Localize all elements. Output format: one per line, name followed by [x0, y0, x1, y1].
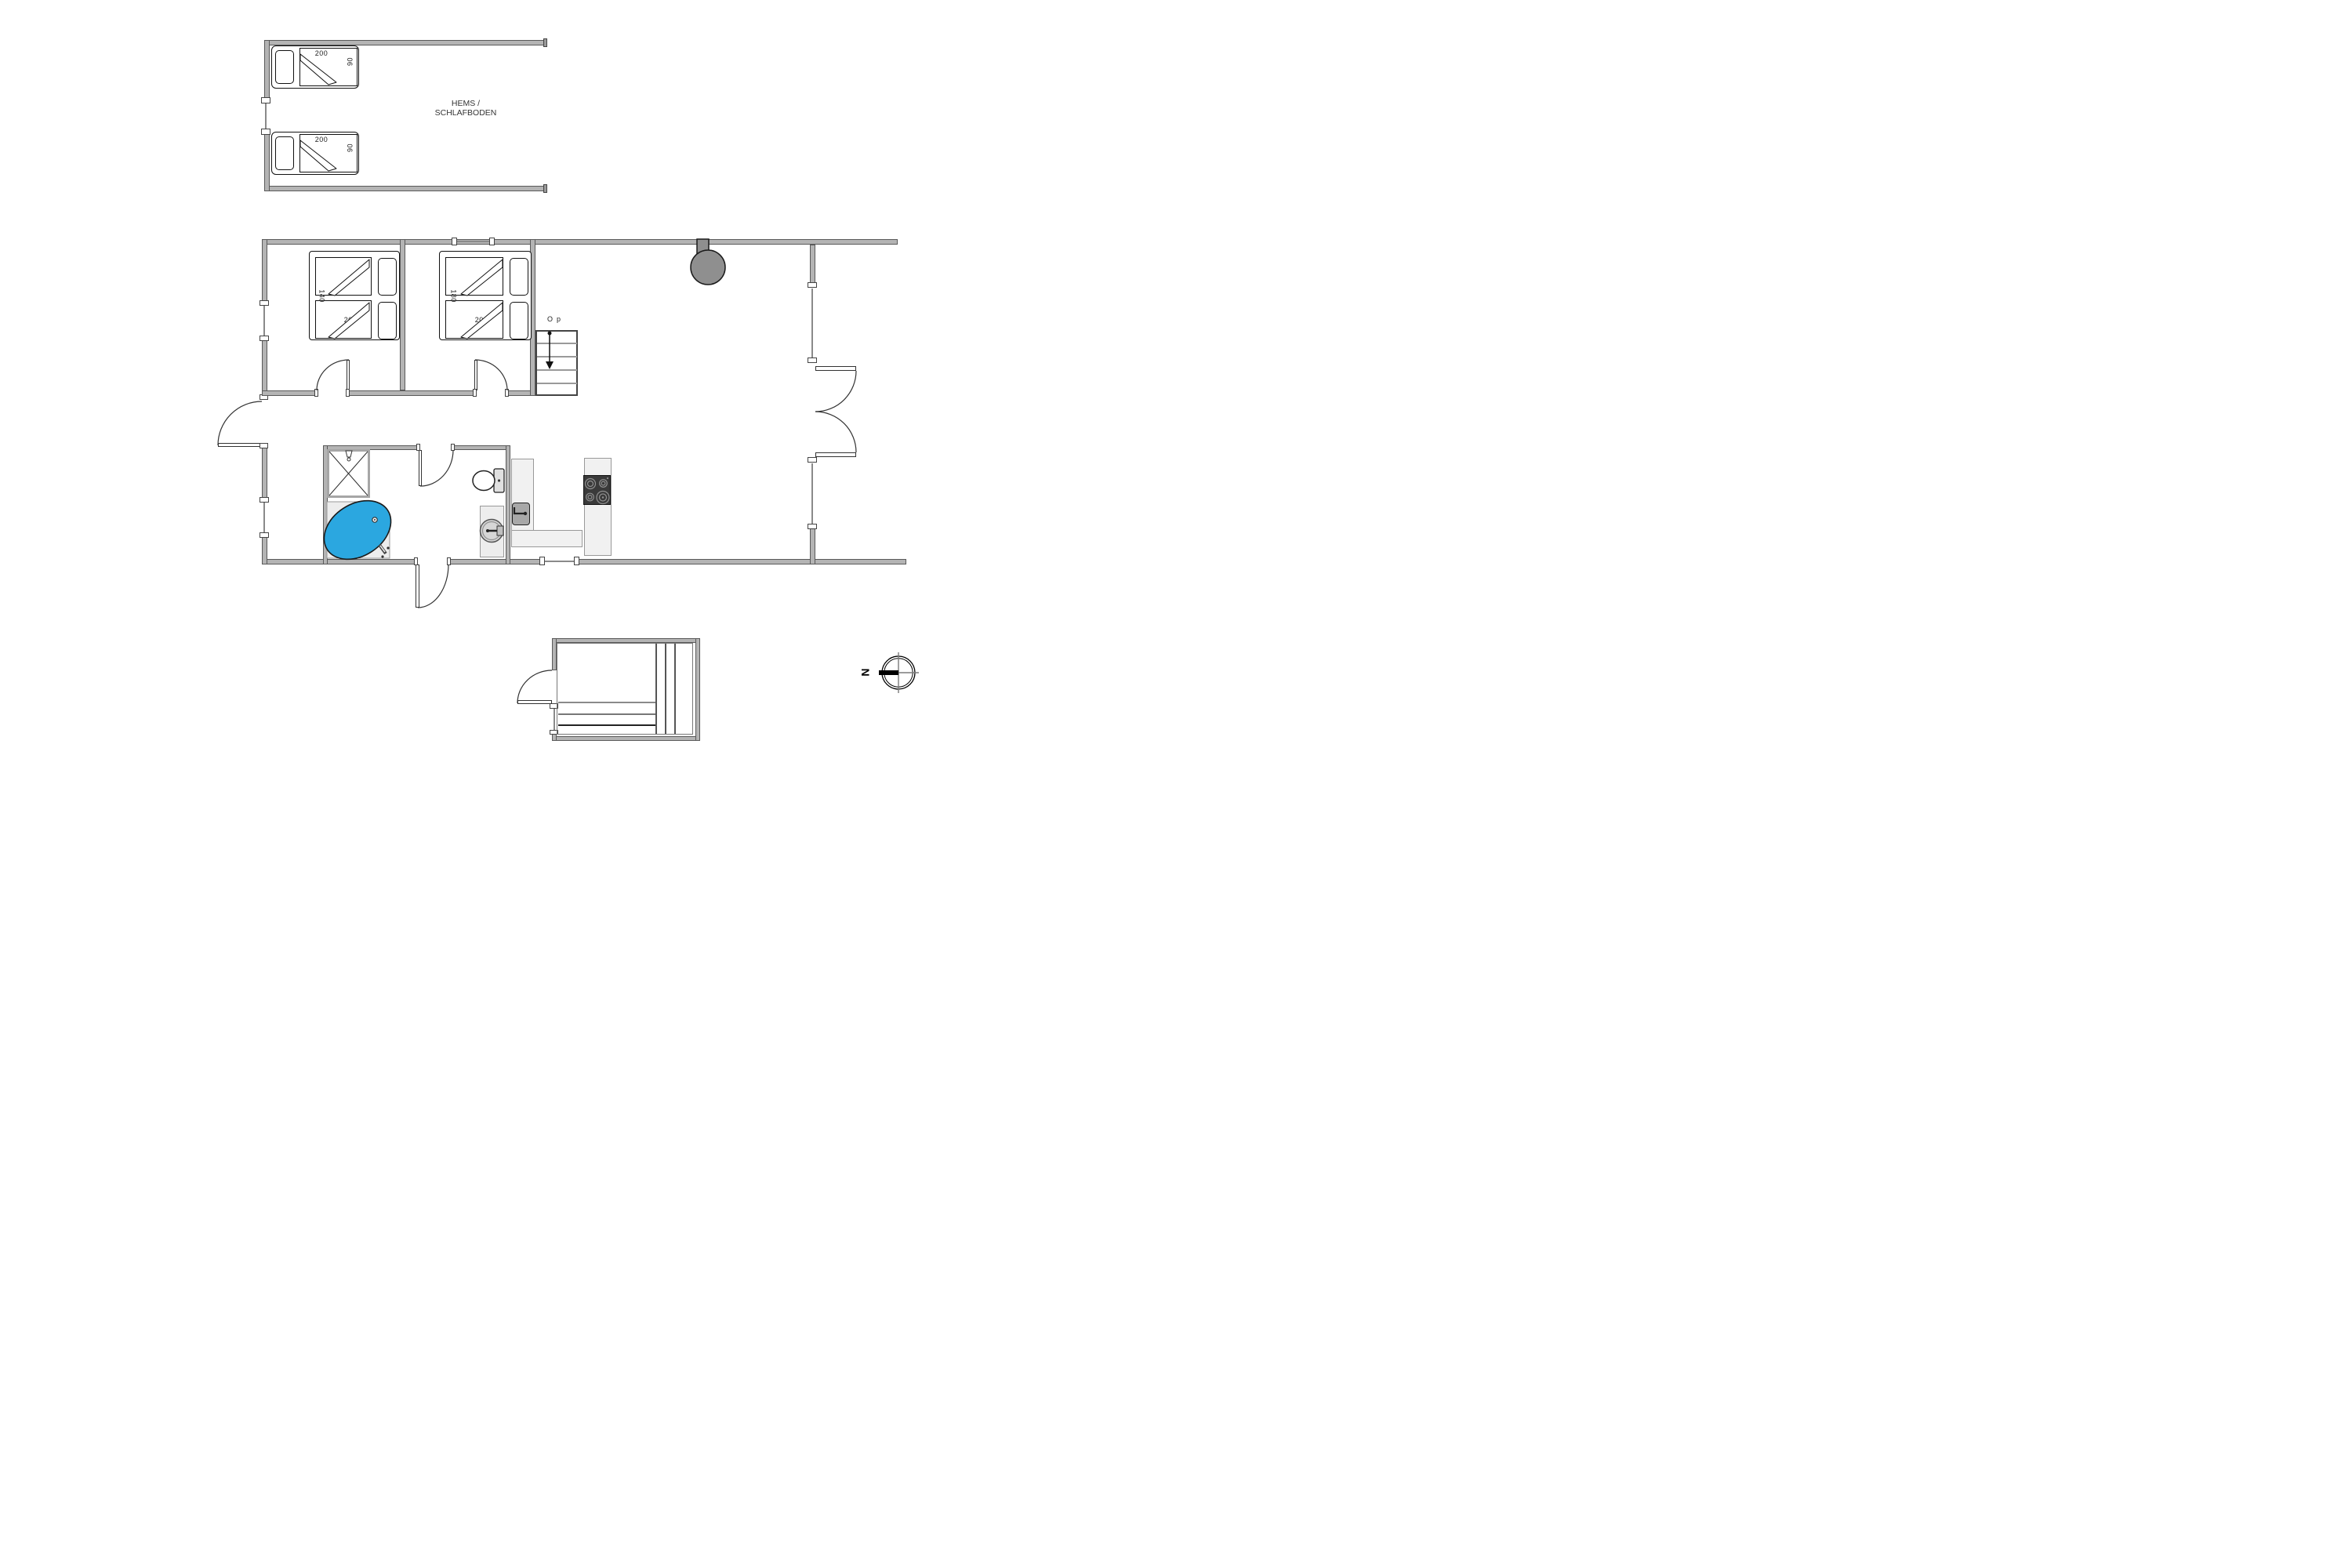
- top-window: [456, 241, 490, 242]
- left-window-upper-frame-b: [260, 336, 269, 341]
- outbuilding-bench-line-1: [558, 702, 655, 703]
- loft-wall-bottom: [264, 186, 546, 191]
- outbuilding-partition-slat-3: [674, 644, 676, 734]
- outbuilding-door-leaf: [517, 700, 552, 704]
- outbuilding-wall-right: [695, 638, 700, 741]
- main-wall-top: [262, 239, 898, 245]
- bedroom1-pillow-a: [378, 258, 397, 296]
- bedroom2-pillow-a: [510, 258, 528, 296]
- right-window-frame-3: [808, 457, 817, 463]
- loft-room-label: HEMS / SCHLAFBODEN: [403, 100, 528, 118]
- outbuilding-door-arc: [517, 670, 552, 703]
- loft-wall-top: [264, 40, 546, 45]
- outbuilding-partition-slat-2: [665, 644, 666, 734]
- compass: [879, 652, 919, 693]
- toilet-tank: [494, 469, 504, 492]
- outbuilding-window: [554, 709, 555, 731]
- bedroom1-door-arc: [317, 360, 349, 390]
- bedroom1-door-leaf: [347, 360, 350, 390]
- right-window-upper: [811, 289, 813, 358]
- bedroom1-width-label: 140: [317, 285, 325, 308]
- entrance-door-leaf: [218, 443, 262, 447]
- bedroom-south-wall-b: [349, 390, 475, 396]
- bedroom2-door-arc: [475, 360, 507, 390]
- bedroom-south-wall-a: [262, 390, 317, 396]
- main-wall-left-1: [262, 239, 267, 302]
- compass-north-label: N: [860, 666, 872, 680]
- bedroom2-width-label: 180: [448, 285, 457, 308]
- outbuilding-bench-line-2: [558, 713, 655, 715]
- kitchen-counter-horizontal: [511, 530, 583, 547]
- bathtub-platform: [327, 502, 390, 558]
- bedroom1-door-jamb-b: [346, 389, 350, 397]
- main-wall-left-3: [262, 447, 267, 499]
- bedroom2-door-jamb-b: [505, 389, 509, 397]
- top-window-frame-b: [489, 238, 495, 245]
- outbuilding-wall-bottom: [552, 736, 700, 741]
- terrace-door-leaf-bottom: [815, 452, 856, 457]
- bedroom2-door-leaf: [474, 360, 477, 390]
- left-window-lower-frame-a: [260, 497, 269, 503]
- shower: [327, 449, 370, 498]
- right-wall-stub-bottom: [810, 528, 815, 564]
- left-window-upper-frame-a: [260, 300, 269, 306]
- wood-stove-body: [691, 250, 725, 285]
- south-door-leaf: [416, 564, 419, 608]
- loft-window: [265, 103, 267, 130]
- right-window-frame-1: [808, 282, 817, 288]
- bathroom-wall-right: [506, 445, 510, 564]
- right-window-frame-2: [808, 358, 817, 363]
- right-wall-stub-top: [810, 245, 815, 284]
- top-window-frame-a: [452, 238, 457, 245]
- south-door-jamb-b: [447, 557, 451, 565]
- outbuilding-partition-slat-1: [655, 644, 657, 734]
- bathroom-door-arc: [420, 450, 453, 486]
- outbuilding-interior-lining: [557, 643, 693, 735]
- kitchen-sink: [512, 503, 530, 525]
- loft-bed-bottom-width-label: 90: [347, 140, 356, 156]
- loft-bed-top-pillow: [275, 50, 294, 84]
- bedroom2-length-label: 200: [467, 317, 495, 325]
- bathtub-drain: [372, 517, 377, 522]
- loft-window-frame-top: [261, 97, 270, 103]
- bedroom1-pillow-b: [378, 302, 397, 339]
- washbasin-counter: [480, 506, 504, 557]
- bedroom2-pillow-b: [510, 302, 528, 339]
- left-window-lower-frame-b: [260, 532, 269, 538]
- loft-bed-bottom-length-label: 200: [307, 136, 336, 145]
- left-window-upper: [263, 305, 265, 336]
- kitchen-window: [544, 561, 574, 562]
- loft-room-label-line2: SCHLAFBODEN: [403, 109, 528, 118]
- loft-window-frame-bottom: [261, 129, 270, 135]
- main-wall-left-2: [262, 339, 267, 398]
- bedroom1-length-label: 200: [336, 317, 365, 325]
- bathtub-platform-arc: [330, 539, 363, 556]
- bedroom1-door-jamb-a: [314, 389, 318, 397]
- loft-wall-top-endcap: [543, 38, 547, 47]
- loft-room-label-line1: HEMS /: [403, 100, 528, 109]
- floor-plan: 200 90 200 90 HEMS / SCHLAFBODEN: [0, 0, 1176, 784]
- loft-wall-left-lower: [264, 133, 270, 191]
- kitchen-island: [584, 458, 612, 556]
- south-door-jamb-a: [414, 557, 418, 565]
- kitchen-window-frame-a: [539, 557, 545, 565]
- bathtub-tap: [379, 545, 386, 554]
- toilet: [473, 469, 504, 492]
- bedroom-partition-wall: [400, 239, 405, 390]
- loft-wall-left-upper: [264, 40, 270, 99]
- main-wall-bottom-left: [262, 559, 417, 564]
- loft-bed-top-length-label: 200: [307, 50, 336, 59]
- main-wall-bottom-right: [575, 559, 906, 564]
- main-wall-bottom-mid: [448, 559, 543, 564]
- main-wall-left-4: [262, 536, 267, 564]
- right-window-frame-4: [808, 524, 817, 529]
- bathroom-door-jamb-b: [451, 444, 455, 451]
- toilet-bowl: [473, 471, 495, 491]
- loft-bed-bottom-pillow: [275, 136, 294, 170]
- bathroom-door-jamb-a: [416, 444, 420, 451]
- kitchen-window-frame-b: [574, 557, 579, 565]
- entrance-door-jamb-bottom: [260, 443, 268, 448]
- cooktop: [583, 475, 611, 505]
- wood-stove: [691, 239, 725, 285]
- loft-wall-bottom-endcap: [543, 184, 547, 193]
- loft-bed-top-width-label: 90: [347, 54, 356, 70]
- terrace-door-leaf-top: [815, 366, 856, 371]
- outbuilding-bench-line-3: [558, 724, 655, 726]
- bathroom-door-leaf: [419, 450, 422, 486]
- stairs: [535, 330, 578, 396]
- left-window-lower: [263, 502, 265, 533]
- bathroom-wall-top-b: [453, 445, 510, 450]
- stairs-label: Op: [543, 316, 569, 325]
- bedroom2-door-jamb-a: [473, 389, 477, 397]
- terrace-door-arc-top: [815, 371, 856, 412]
- entrance-door-arc: [218, 401, 262, 445]
- south-door-arc: [418, 564, 448, 608]
- terrace-door-arc-bottom: [815, 412, 856, 452]
- right-window-lower: [811, 463, 813, 524]
